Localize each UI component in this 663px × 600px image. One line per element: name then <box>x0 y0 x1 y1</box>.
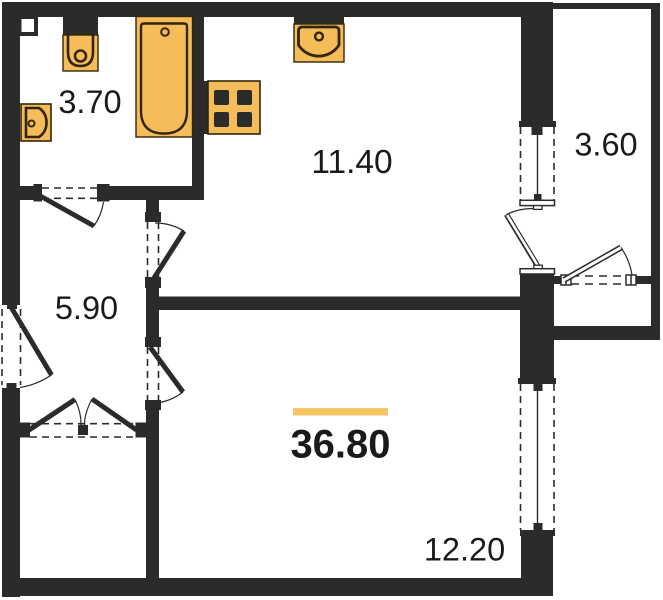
svg-text:11.40: 11.40 <box>311 144 392 181</box>
svg-text:3.70: 3.70 <box>58 84 121 120</box>
svg-text:36.80: 36.80 <box>290 423 390 467</box>
svg-text:12.20: 12.20 <box>424 532 505 568</box>
svg-text:3.60: 3.60 <box>574 127 637 163</box>
svg-text:5.90: 5.90 <box>55 290 118 326</box>
